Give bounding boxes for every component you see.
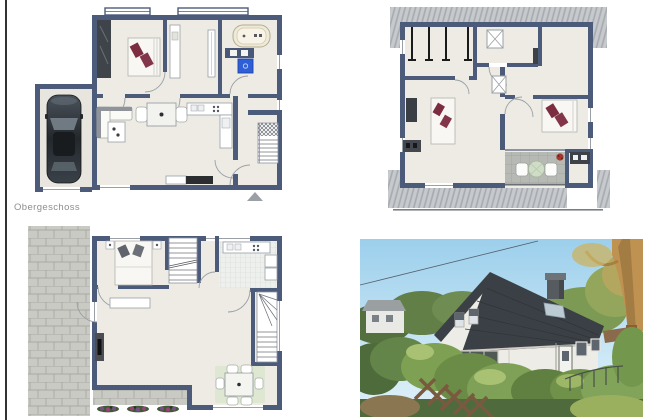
fireplace bbox=[95, 333, 104, 361]
plant bbox=[556, 153, 563, 160]
balcony bbox=[505, 152, 565, 183]
side-table bbox=[108, 122, 125, 142]
front-door bbox=[559, 346, 572, 374]
wardrobe bbox=[97, 20, 111, 78]
dining-set bbox=[215, 365, 265, 405]
upper-floor-plan bbox=[10, 222, 312, 418]
car bbox=[45, 95, 83, 183]
double-bed bbox=[542, 100, 577, 132]
vanity-sink bbox=[225, 48, 254, 58]
washing-machine bbox=[238, 59, 253, 73]
desk bbox=[403, 140, 421, 152]
stairs-down bbox=[257, 292, 277, 362]
oven bbox=[265, 268, 277, 280]
house-photo bbox=[360, 239, 643, 417]
chimney bbox=[545, 273, 566, 299]
north-marker bbox=[247, 192, 263, 201]
ground-floor-plan bbox=[16, 2, 312, 202]
double-bed bbox=[128, 38, 160, 76]
balcony-chair bbox=[545, 163, 557, 176]
attic-floor-plan bbox=[385, 2, 633, 214]
balcony-railing bbox=[505, 184, 569, 186]
radiator bbox=[533, 48, 538, 64]
sideboard bbox=[110, 298, 150, 308]
single-bed bbox=[431, 98, 455, 144]
exposé-page: Obergeschoss bbox=[0, 0, 646, 420]
staircase bbox=[258, 123, 278, 163]
kitchen bbox=[219, 241, 277, 288]
bathtub bbox=[233, 25, 270, 47]
stairs-up bbox=[169, 238, 197, 283]
sideboard bbox=[166, 176, 213, 184]
upper-floor-label: Obergeschoss bbox=[14, 202, 80, 213]
flower-bed bbox=[97, 406, 179, 413]
balcony-window-wall bbox=[505, 149, 565, 151]
walkway-paving bbox=[93, 390, 187, 405]
plan-shadow-line bbox=[393, 209, 603, 211]
neighbour-house bbox=[362, 300, 406, 333]
left-frame-line bbox=[5, 0, 7, 420]
balcony-chair bbox=[516, 163, 528, 176]
terrace-paving bbox=[28, 226, 90, 416]
bath-counter bbox=[570, 152, 590, 164]
wardrobe bbox=[406, 98, 417, 122]
fridge bbox=[265, 255, 277, 267]
